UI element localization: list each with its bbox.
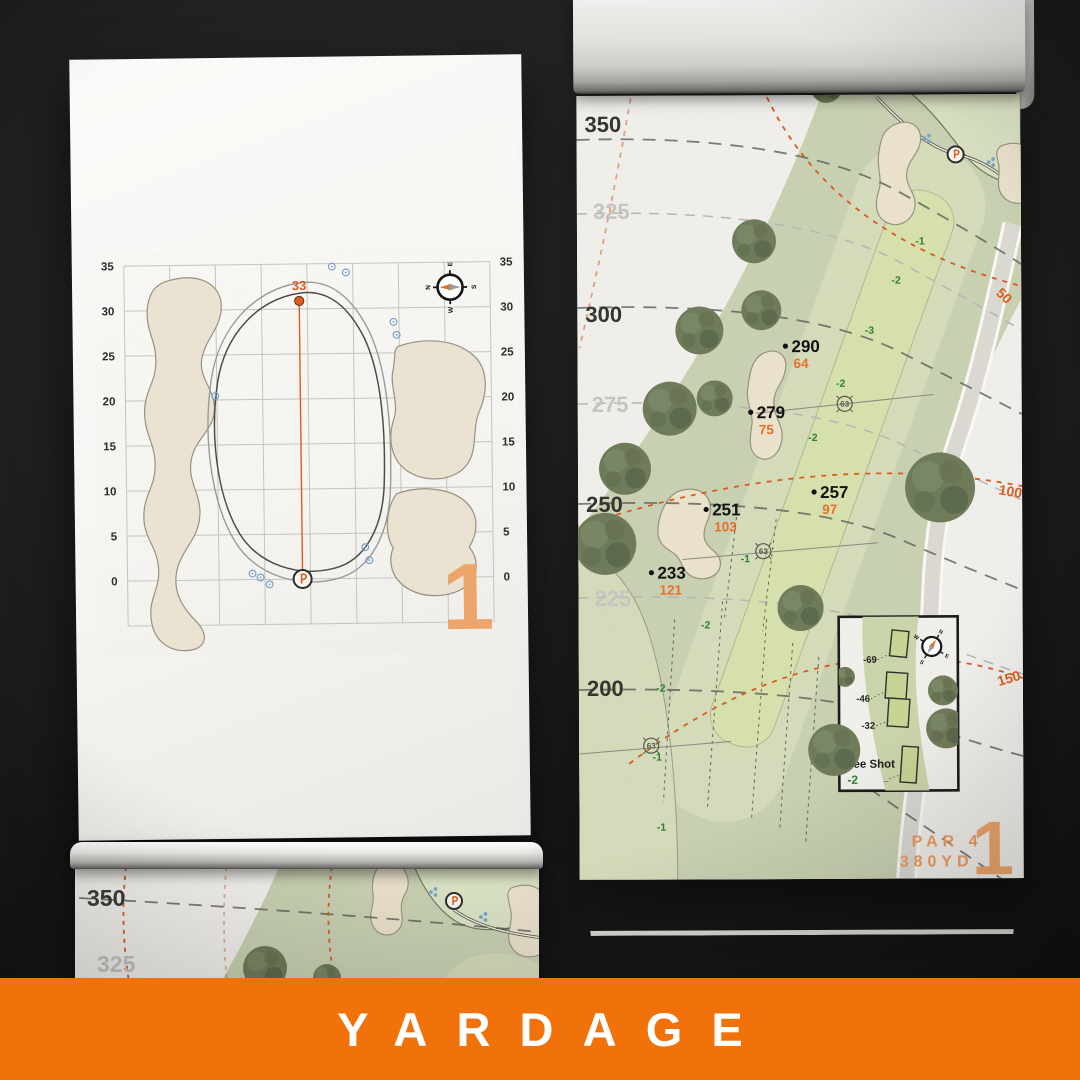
- page-stack-edge[interactable]: [582, 877, 1022, 936]
- banner-title: YARDAGE: [308, 1002, 772, 1057]
- partial-hole-map: 350 325: [75, 864, 539, 978]
- hole-map-book: -1 -2 -3 -2 -2 -1 -2 -2 -1 -1 63: [576, 0, 1040, 941]
- partial-page: 350 325: [75, 864, 539, 978]
- hole-map: -1 -2 -3 -2 -2 -1 -2 -2 -1 -1 63: [576, 94, 1023, 880]
- paper-grain: [576, 94, 1023, 880]
- partial-book: 350 325: [70, 842, 543, 978]
- paper-grain: [75, 864, 539, 978]
- page-curl[interactable]: [70, 842, 543, 869]
- green-diagram: 33 35 30 25: [94, 246, 519, 656]
- flipped-page-roll[interactable]: [573, 0, 1025, 94]
- yardage-book-scene: 33 35 30 25: [0, 0, 1080, 1080]
- paper-grain: [94, 246, 519, 656]
- green-detail-page: 33 35 30 25: [69, 54, 531, 840]
- hole-map-page: -1 -2 -3 -2 -2 -1 -2 -2 -1 -1 63: [576, 94, 1023, 880]
- yardage-banner: YARDAGE: [0, 978, 1080, 1080]
